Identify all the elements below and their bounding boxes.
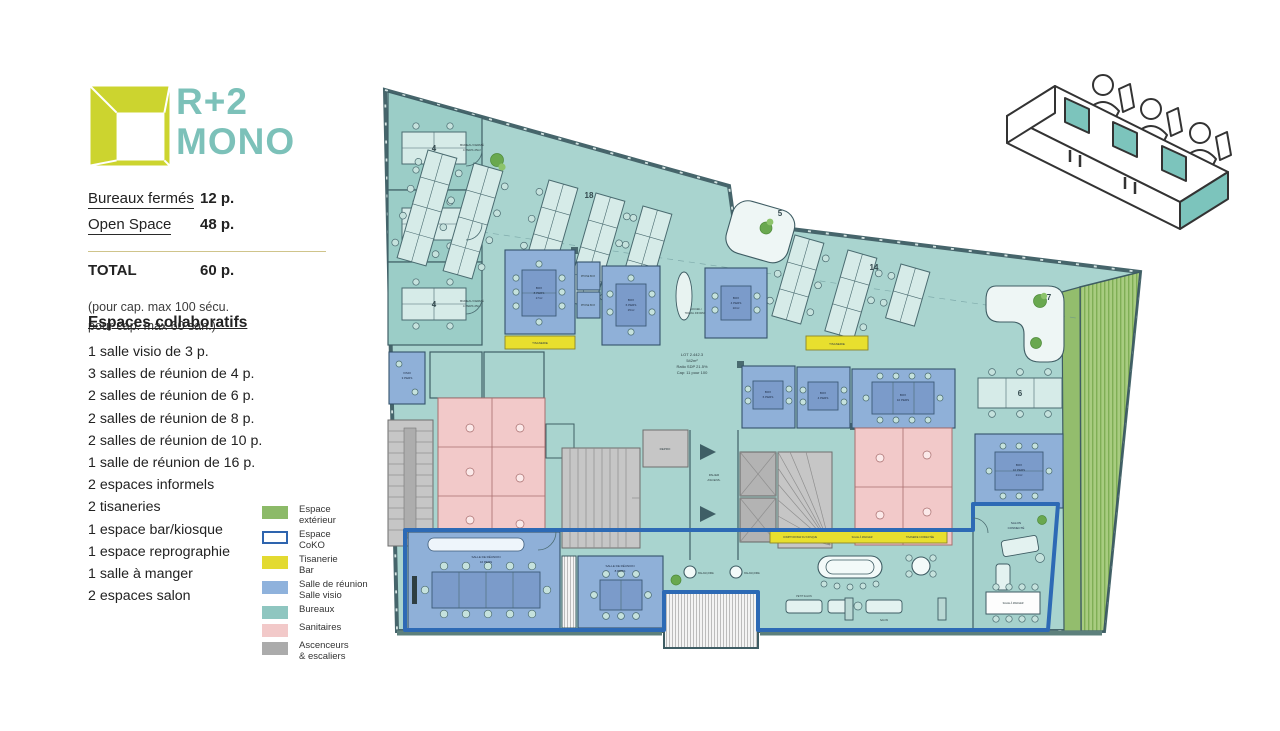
svg-text:4 PERS: 4 PERS [818, 396, 829, 400]
stat-value: 60 p. [200, 262, 234, 279]
legend-swatch-pink [262, 624, 288, 637]
svg-text:BOX: BOX [733, 296, 739, 300]
collab-item: 2 salles de réunion de 10 p. [88, 430, 328, 452]
room-box-8-pers: BOX 8 PERS 17m² [505, 250, 575, 334]
svg-text:TISANERIE: TISANERIE [532, 341, 548, 345]
svg-text:16 PERS: 16 PERS [480, 560, 492, 564]
legend-swatch-teal [262, 606, 288, 619]
collab-item: 3 salles de réunion de 4 p. [88, 363, 328, 385]
svg-text:SALLE DE RÉUNION: SALLE DE RÉUNION [471, 554, 500, 559]
stats-divider [88, 251, 326, 252]
desk-count-14: 14 [870, 263, 879, 272]
svg-text:10m²: 10m² [733, 306, 740, 310]
svg-text:BOX: BOX [900, 393, 906, 397]
svg-text:BUREAU FERMÉ: BUREAU FERMÉ [460, 142, 484, 147]
stairs-left [388, 420, 433, 546]
svg-text:PHONE BOX: PHONE BOX [581, 275, 596, 278]
svg-text:542m²: 542m² [686, 358, 698, 363]
stat-label: Bureaux fermés [88, 190, 194, 209]
svg-text:TISANERIE: TISANERIE [829, 342, 845, 346]
room-box-10-pers-b: BOX 10 PERS 21m² [975, 434, 1063, 508]
room-phone-box: PHONE BOX [577, 292, 600, 318]
svg-text:15m²: 15m² [628, 308, 635, 312]
svg-text:BALANÇOIRE: BALANÇOIRE [744, 572, 760, 575]
svg-text:7: 7 [1047, 293, 1052, 302]
svg-text:LOT 2.442.3: LOT 2.442.3 [681, 352, 704, 357]
svg-text:VISIO: VISIO [403, 371, 412, 375]
stat-value: 12 p. [200, 190, 234, 207]
svg-text:SALLE À MANGER: SALLE À MANGER [1003, 602, 1024, 605]
svg-text:BOX: BOX [765, 390, 771, 394]
shared-desk [1007, 86, 1228, 229]
tisanerie-bar-right: TISANERIE [806, 336, 868, 350]
legend-swatch-blue [262, 581, 288, 594]
page: { "header": { "title_line1": "R+2", "tit… [0, 0, 1280, 731]
wall-screen [412, 576, 417, 604]
sanitaires-left [438, 398, 545, 545]
stat-open-space: Open Space 48 p. [88, 216, 326, 242]
svg-text:TISANERIE CONNECTÉE: TISANERIE CONNECTÉE [906, 536, 935, 539]
svg-text:SALON: SALON [880, 619, 888, 622]
collab-item: 1 salle de réunion de 16 p. [88, 452, 328, 474]
stat-total: TOTAL 60 p. [88, 262, 326, 288]
legend-swatch-yellow [262, 556, 288, 569]
svg-text:10 PERS: 10 PERS [897, 398, 909, 402]
collab-item: 2 salles de réunion de 6 p. [88, 385, 328, 407]
svg-text:4: 4 [432, 300, 437, 309]
svg-text:ACCUEIL /: ACCUEIL / [690, 308, 702, 311]
stat-label: TOTAL [88, 262, 137, 279]
svg-text:SALON: SALON [1011, 521, 1021, 525]
legend-swatch-green [262, 506, 288, 519]
svg-text:6 PERS: 6 PERS [626, 303, 637, 307]
plant [498, 163, 505, 170]
svg-text:17m²: 17m² [536, 296, 543, 300]
sanitaires-right [855, 428, 952, 545]
svg-text:21m²: 21m² [1016, 473, 1023, 477]
title-line-2: MONO [176, 122, 295, 162]
room-salle-reunion-16: SALLE DE RÉUNION 16 PERS [408, 532, 560, 629]
svg-text:8 PERS: 8 PERS [615, 569, 626, 573]
svg-text:BALANÇOIRE: BALANÇOIRE [698, 572, 714, 575]
room-box-6-pers: BOX 6 PERS 15m² [602, 266, 660, 345]
svg-text:Ratio SDP 21.5%: Ratio SDP 21.5% [676, 364, 707, 369]
coko-cube-logo [88, 84, 172, 168]
room-phone-box: PHONE BOX [577, 262, 600, 290]
svg-text:SALLE À MANGER: SALLE À MANGER [852, 536, 873, 539]
svg-text:CONNECTÉ: CONNECTÉ [1008, 525, 1025, 530]
svg-text:REPRO: REPRO [660, 447, 671, 451]
svg-text:3 PERS: 3 PERS [402, 376, 413, 380]
svg-text:ASCENS.: ASCENS. [707, 478, 720, 482]
legend-swatch-gray [262, 642, 288, 655]
svg-text:PETIT SALON: PETIT SALON [796, 595, 812, 598]
svg-text:BOX: BOX [820, 391, 826, 395]
title-line-1: R+2 [176, 82, 295, 122]
room-box-6-pers-b: BOX 6 PERS [742, 366, 795, 428]
collab-heading: Espaces collaboratifs [88, 314, 328, 332]
repro-room: REPRO [643, 430, 688, 467]
room-box-10-pers-a: BOX 10 PERS [852, 369, 955, 428]
svg-text:BOX: BOX [628, 298, 634, 302]
stat-value: 48 p. [200, 216, 234, 233]
svg-text:SALLE DE RÉUNION: SALLE DE RÉUNION [605, 563, 634, 568]
svg-text:BOX: BOX [1016, 463, 1022, 467]
plant [671, 575, 681, 585]
room-salon-connecte: SALON CONNECTÉ SALLE À MANGER [973, 505, 1058, 630]
stat-bureaux-fermes: Bureaux fermés 12 p. [88, 190, 326, 216]
svg-text:COMPTOIR BAR DU KIOSQUE: COMPTOIR BAR DU KIOSQUE [783, 536, 817, 539]
stairs-center [562, 448, 640, 548]
page-title: R+2 MONO [176, 82, 295, 162]
svg-text:8 PERS: 8 PERS [534, 291, 545, 295]
duct-shaft [562, 556, 576, 628]
svg-text:10 PERS: 10 PERS [1013, 468, 1025, 472]
collab-item: 1 salle visio de 3 p. [88, 341, 328, 363]
svg-text:4 PERS: 4 PERS [731, 301, 742, 305]
svg-text:BOX: BOX [536, 286, 542, 290]
legend-swatch-coko [262, 531, 288, 544]
tisanerie-bar-left: TISANERIE [505, 336, 575, 349]
svg-text:PALIER: PALIER [709, 473, 720, 477]
coworking-illustration [1000, 38, 1268, 236]
room-box-4-pers-b: BOX 4 PERS [797, 367, 850, 428]
svg-text:5: 5 [778, 209, 783, 218]
stat-label: Open Space [88, 216, 171, 235]
room-salle-reunion-8: SALLE DE RÉUNION 8 PERS [578, 556, 663, 628]
svg-text:6: 6 [1018, 389, 1023, 398]
svg-text:6 PERS: 6 PERS [763, 395, 774, 399]
terrace-espace-exterieur [1062, 272, 1140, 631]
room-visio-3-pers: VISIO 3 PERS [389, 352, 425, 404]
facade-void [664, 592, 758, 648]
pillar [938, 598, 946, 620]
svg-text:PHONE BOX: PHONE BOX [581, 304, 596, 307]
svg-text:4 PERS 25m²: 4 PERS 25m² [463, 148, 481, 152]
room-box-4-pers: BOX 4 PERS 10m² [705, 268, 767, 338]
svg-text:4 PERS 25m²: 4 PERS 25m² [463, 304, 481, 308]
collab-item: 2 espaces informels [88, 474, 328, 496]
desk-count-18: 18 [585, 191, 594, 200]
pillar [845, 598, 853, 620]
svg-text:Cap: 11 pour 100: Cap: 11 pour 100 [677, 370, 708, 375]
svg-text:BUREAU FERMÉ: BUREAU FERMÉ [460, 298, 484, 303]
collab-item: 2 salles de réunion de 8 p. [88, 408, 328, 430]
